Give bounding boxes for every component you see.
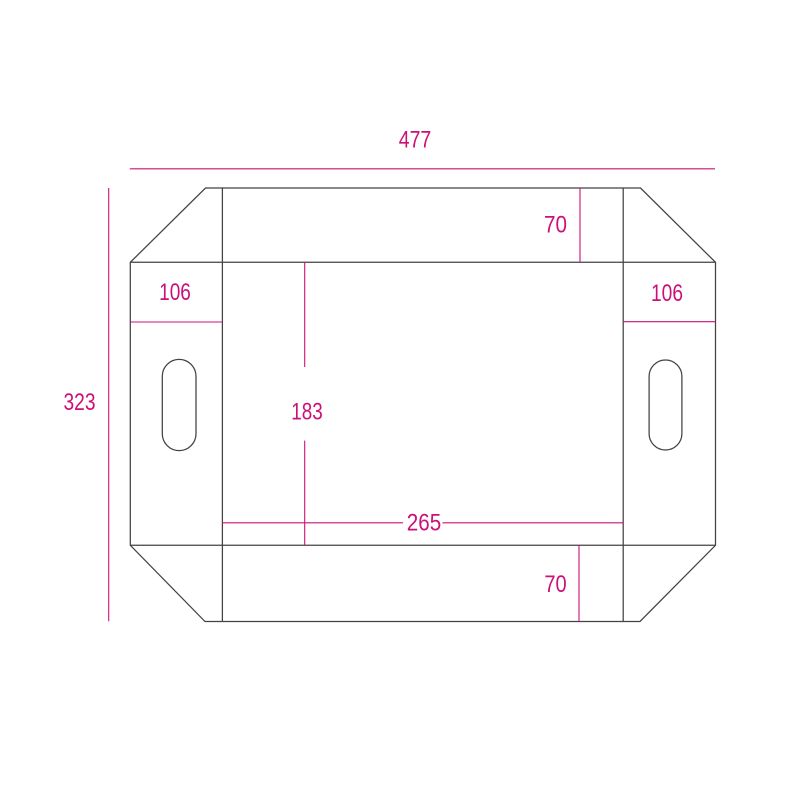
- svg-text:106: 106: [651, 280, 683, 307]
- svg-text:106: 106: [159, 279, 191, 306]
- svg-text:70: 70: [544, 571, 566, 598]
- svg-text:323: 323: [64, 389, 96, 416]
- svg-text:183: 183: [291, 399, 323, 426]
- svg-text:70: 70: [544, 212, 567, 239]
- svg-text:265: 265: [407, 510, 441, 537]
- svg-text:477: 477: [399, 127, 432, 154]
